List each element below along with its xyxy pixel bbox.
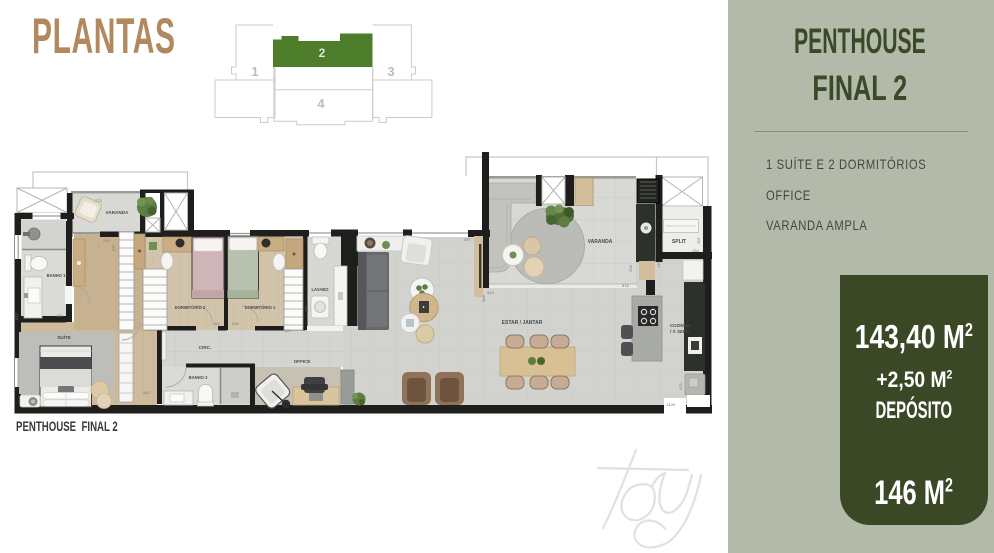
svg-text:134: 134 xyxy=(692,248,699,253)
svg-text:230: 230 xyxy=(232,321,239,326)
svg-text:CIRC.: CIRC. xyxy=(199,345,212,350)
svg-text:543: 543 xyxy=(487,290,494,295)
svg-text:/ Á SERV.: / Á SERV. xyxy=(670,329,690,334)
svg-text:818: 818 xyxy=(622,283,629,288)
svg-text:BANHO 2: BANHO 2 xyxy=(189,375,209,380)
svg-text:SUÍTE: SUÍTE xyxy=(57,333,71,340)
svg-text:OFFICE: OFFICE xyxy=(294,359,311,364)
svg-text:537: 537 xyxy=(111,244,116,251)
svg-text:397: 397 xyxy=(464,237,471,242)
svg-text:124: 124 xyxy=(284,328,291,333)
svg-text:134: 134 xyxy=(56,313,63,318)
svg-text:LAVABO: LAVABO xyxy=(311,287,329,292)
svg-text:1426: 1426 xyxy=(666,402,676,407)
svg-text:BANHO 1: BANHO 1 xyxy=(47,273,67,278)
svg-text:SPLIT: SPLIT xyxy=(672,239,686,245)
svg-text:475: 475 xyxy=(678,383,683,390)
svg-text:145: 145 xyxy=(656,261,661,268)
svg-text:253: 253 xyxy=(213,321,220,326)
svg-text:214: 214 xyxy=(103,238,110,243)
svg-text:228: 228 xyxy=(628,265,633,272)
svg-text:292: 292 xyxy=(304,305,309,312)
svg-text:273: 273 xyxy=(95,198,102,203)
svg-text:308: 308 xyxy=(481,295,486,302)
svg-text:119: 119 xyxy=(696,237,701,244)
svg-text:DORMITÓRIO 2: DORMITÓRIO 2 xyxy=(175,305,206,310)
svg-text:ESTAR / JANTAR: ESTAR / JANTAR xyxy=(502,320,543,326)
svg-text:442: 442 xyxy=(143,390,150,395)
svg-text:VARANDA: VARANDA xyxy=(588,239,613,245)
svg-text:VARANDA: VARANDA xyxy=(106,210,129,215)
svg-text:COZINHA: COZINHA xyxy=(670,323,691,328)
svg-text:DORMITÓRIO 1: DORMITÓRIO 1 xyxy=(245,305,276,310)
svg-text:972: 972 xyxy=(14,313,19,320)
